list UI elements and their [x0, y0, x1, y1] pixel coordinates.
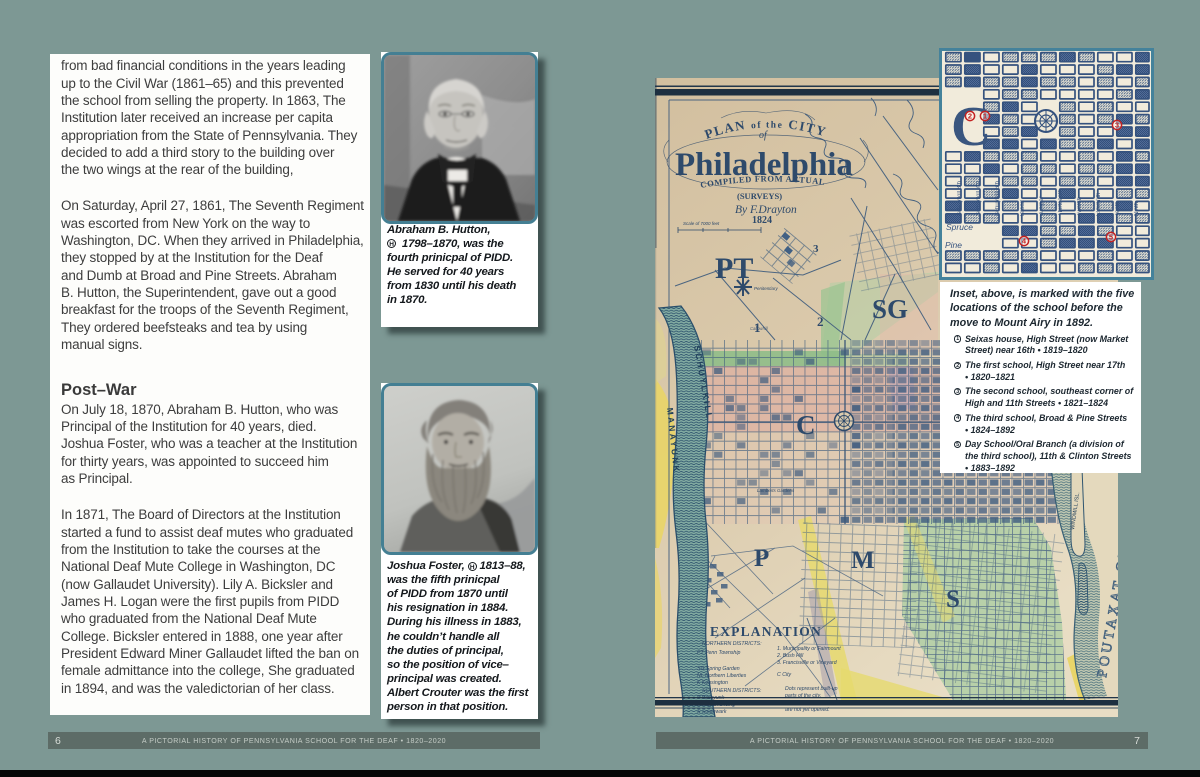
svg-text:Spruce: Spruce	[946, 222, 973, 232]
svg-text:Ninth: Ninth	[1134, 202, 1140, 216]
svg-text:Schuylkill 8th: Schuylkill 8th	[957, 181, 963, 216]
svg-text:SOUTHERN DISTRICTS:: SOUTHERN DISTRICTS:	[702, 688, 762, 694]
svg-text:(SURVEYS): (SURVEYS)	[737, 191, 782, 201]
svg-text:Juniper: Juniper	[1039, 196, 1045, 216]
svg-text:3. Francisville or Vineyard: 3. Francisville or Vineyard	[777, 660, 838, 666]
svg-text:Schuylkill 7th: Schuylkill 7th	[976, 181, 982, 216]
svg-text:Broad: Broad	[1020, 200, 1026, 216]
svg-text:NORTHERN DISTRICTS:: NORTHERN DISTRICTS:	[702, 641, 762, 647]
svg-text:Pine: Pine	[945, 240, 962, 250]
svg-text:NL Northern Liberties: NL Northern Liberties	[697, 673, 747, 679]
svg-text:C: C	[951, 96, 991, 158]
svg-text:3: 3	[813, 243, 819, 255]
svg-text:Tenth: Tenth	[1115, 201, 1121, 216]
svg-text:Scale of 7000 feet: Scale of 7000 feet	[683, 221, 720, 226]
svg-text:5: 5	[1109, 233, 1113, 242]
svg-text:Dots represent built-up: Dots represent built-up	[785, 686, 838, 692]
svg-text:SG Spring Garden: SG Spring Garden	[697, 666, 740, 672]
svg-text:Lamberts Gardens: Lamberts Gardens	[757, 488, 795, 493]
svg-text:Callowhill: Callowhill	[750, 326, 769, 331]
svg-text:1: 1	[983, 112, 987, 121]
svg-text:K Kensington: K Kensington	[697, 680, 728, 686]
svg-text:2. Bush Hill: 2. Bush Hill	[776, 653, 804, 659]
svg-text:2: 2	[968, 112, 972, 121]
svg-text:SG: SG	[872, 294, 908, 324]
svg-text:1824: 1824	[752, 215, 772, 226]
svg-text:S: S	[946, 586, 960, 613]
svg-text:Twelfth: Twelfth	[1077, 197, 1083, 216]
svg-text:Schuylkill 6th: Schuylkill 6th	[995, 181, 1001, 216]
svg-text:1. Municipality or Fairmount: 1. Municipality or Fairmount	[777, 646, 841, 652]
svg-text:P: P	[754, 545, 769, 572]
svg-text:PT Penn Township: PT Penn Township	[697, 650, 740, 656]
svg-text:Penitentiary: Penitentiary	[754, 286, 779, 291]
svg-text:of: of	[759, 130, 768, 141]
svg-text:EXPLANATION: EXPLANATION	[710, 624, 822, 639]
svg-text:C: C	[796, 410, 816, 440]
svg-text:3: 3	[1115, 121, 1119, 130]
svg-text:Thirteenth: Thirteenth	[1058, 189, 1064, 216]
svg-text:M: M	[851, 547, 875, 574]
svg-text:2: 2	[817, 314, 824, 329]
svg-text:C City: C City	[777, 672, 792, 678]
svg-text:Eleventh: Eleventh	[1096, 193, 1102, 216]
svg-text:PT: PT	[715, 252, 753, 285]
svg-text:S Southwark: S Southwark	[697, 709, 727, 715]
